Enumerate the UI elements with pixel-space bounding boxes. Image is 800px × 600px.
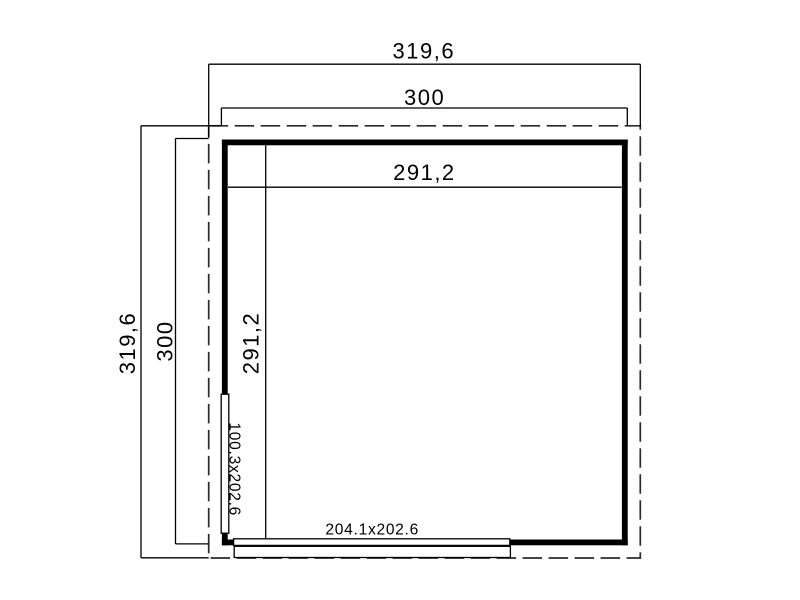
svg-text:204.1x202.6: 204.1x202.6: [325, 521, 419, 538]
svg-text:319,6: 319,6: [393, 39, 456, 64]
svg-text:300: 300: [404, 85, 445, 110]
svg-text:291,2: 291,2: [239, 312, 264, 375]
svg-text:300: 300: [152, 320, 177, 361]
svg-text:291,2: 291,2: [393, 160, 456, 185]
svg-text:100.3x202.6: 100.3x202.6: [226, 422, 243, 516]
svg-text:319,6: 319,6: [115, 312, 140, 375]
